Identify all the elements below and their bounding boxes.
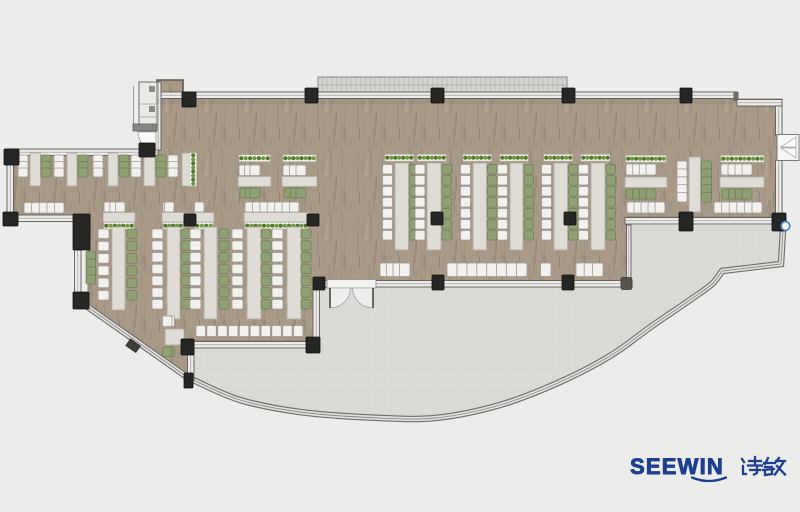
svg-text:SEEWIN: SEEWIN xyxy=(630,454,724,479)
